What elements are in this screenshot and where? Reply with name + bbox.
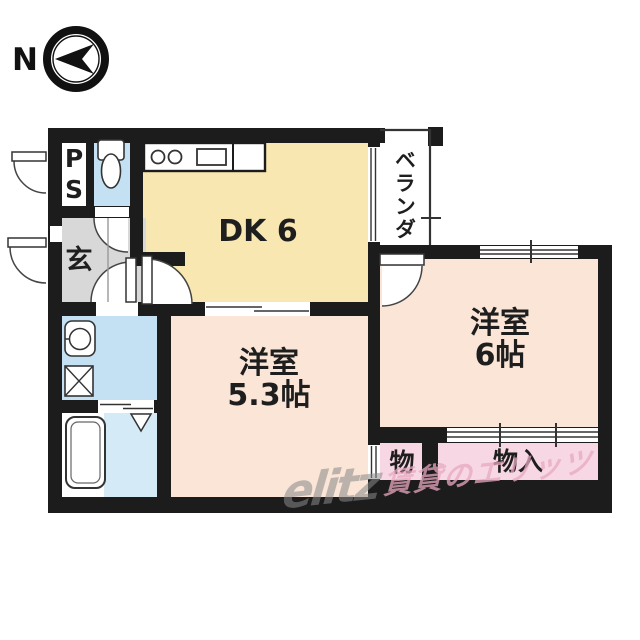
wall-storage-divider — [422, 443, 438, 480]
sliding-door-storage — [368, 445, 380, 479]
wall-washroom-right — [157, 302, 171, 497]
wall-entrance-right — [160, 266, 173, 306]
wall-top — [48, 128, 385, 143]
wall-bottom — [48, 497, 612, 513]
compass-north-label: N — [12, 42, 38, 78]
western-room-6-name: 洋室 — [470, 308, 530, 340]
compass-icon — [47, 30, 105, 88]
bathroom-floor-blue — [104, 413, 157, 497]
entrance-label: 玄 — [64, 246, 94, 276]
storage-closet-label: 物入 — [458, 446, 578, 477]
western-room-5-3-label: 洋室 5.3帖 — [189, 342, 349, 418]
western-room-6-label: 洋室 6帖 — [420, 302, 580, 378]
wall-entrance-step — [130, 252, 185, 266]
washroom-floor — [62, 316, 157, 400]
ps-door-icon — [12, 152, 46, 193]
entrance-wall-recess — [50, 226, 62, 242]
western-room-5-3-name: 洋室 — [239, 348, 299, 380]
washroom-door-opening — [96, 302, 138, 316]
western-room-5-3-size: 5.3帖 — [227, 380, 310, 412]
wall-right — [598, 245, 612, 513]
floor-plan: N PS DK 6 ベランダ 玄 洋室 5.3帖 洋室 6帖 物 物入 elit… — [0, 0, 640, 640]
wall-dk-right-upper — [368, 128, 380, 147]
ps-label: PS — [60, 145, 88, 205]
toilet-floor — [94, 140, 130, 206]
toilet-door-leaf — [94, 206, 130, 218]
window-room6-bottom — [447, 428, 598, 442]
western-room-6-size: 6帖 — [475, 340, 526, 372]
sliding-door-dk-room53 — [205, 302, 310, 316]
window-room6-top — [480, 246, 578, 258]
wall-storage-bottom — [380, 480, 598, 497]
sliding-door-bath — [98, 400, 154, 413]
front-door-icon — [8, 238, 46, 283]
dk-label: DK 6 — [198, 212, 318, 252]
wall-veranda-stub — [428, 127, 443, 146]
veranda-glass-door — [368, 147, 380, 242]
storage-small-label: 物 — [384, 447, 420, 477]
wall-toilet-dk — [130, 128, 143, 256]
veranda-label: ベランダ — [391, 148, 417, 242]
